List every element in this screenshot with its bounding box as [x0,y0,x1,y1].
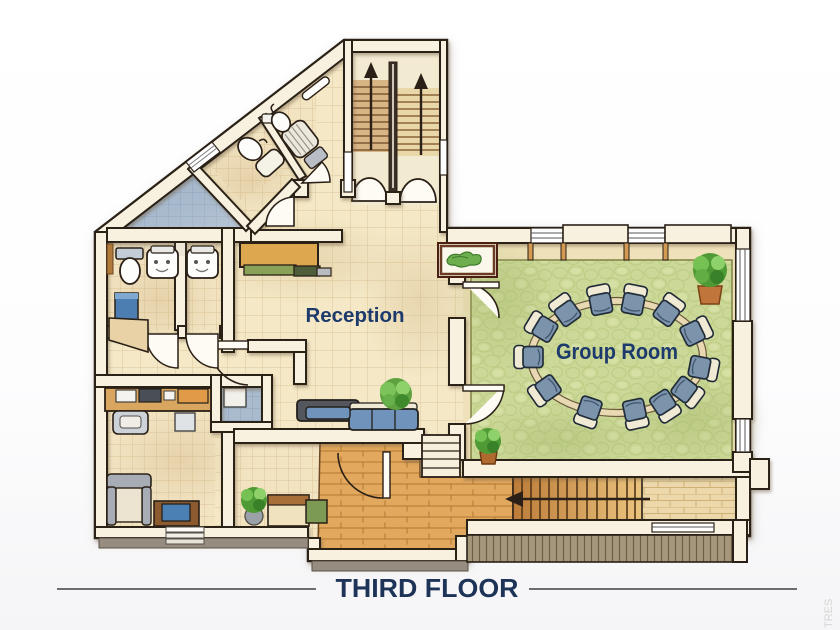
svg-text:Reception: Reception [305,304,404,327]
svg-text:THIRD FLOOR: THIRD FLOOR [336,573,519,603]
svg-text:Group Room: Group Room [556,339,678,364]
svg-text:TRES: TRES [823,599,835,628]
